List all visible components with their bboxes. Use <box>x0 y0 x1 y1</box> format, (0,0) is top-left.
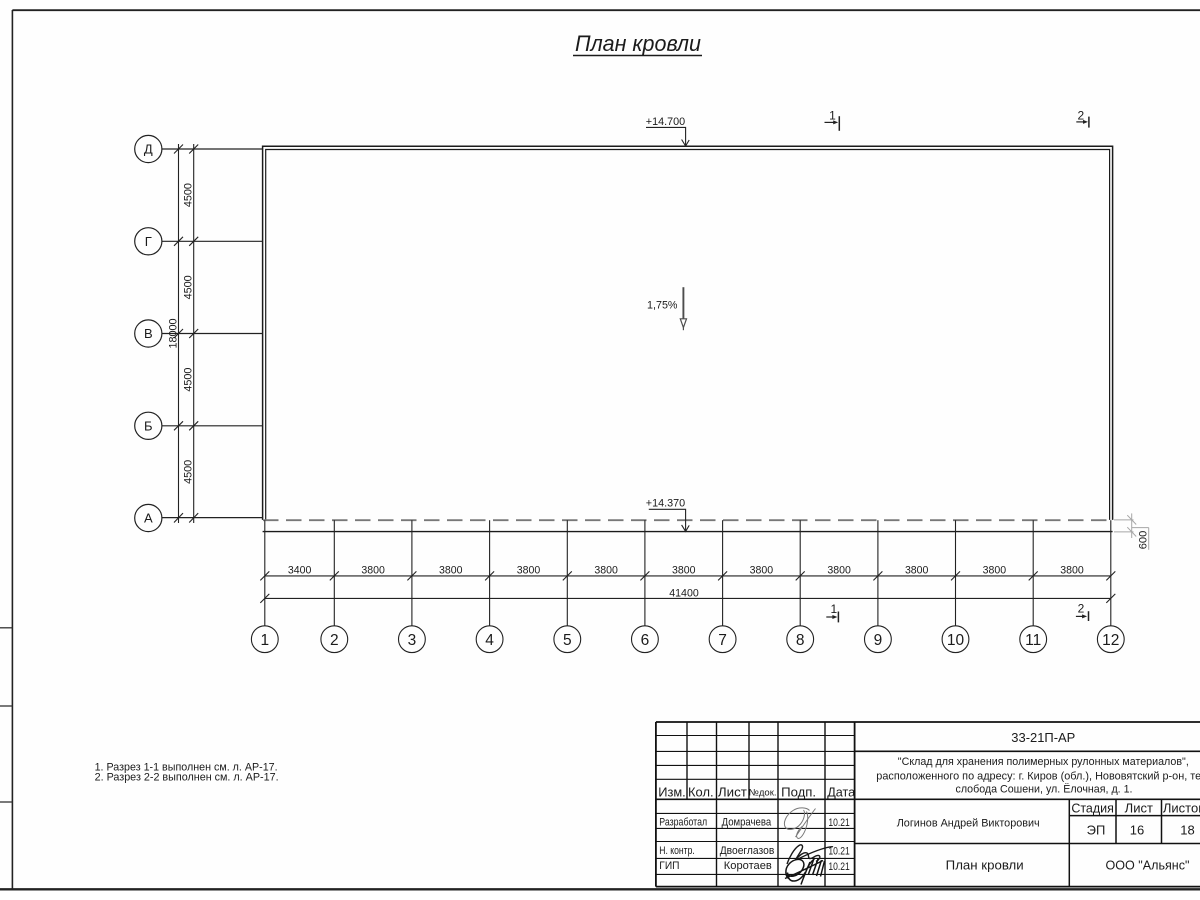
svg-text:План кровли: План кровли <box>575 31 701 56</box>
svg-text:Домрачева: Домрачева <box>722 816 772 828</box>
svg-text:10: 10 <box>947 632 965 649</box>
svg-text:Разработал: Разработал <box>659 816 707 828</box>
svg-text:Лист: Лист <box>1125 800 1153 815</box>
svg-text:10.21: 10.21 <box>828 861 849 873</box>
svg-text:3: 3 <box>408 632 417 649</box>
svg-text:10.21: 10.21 <box>828 817 849 829</box>
svg-text:7: 7 <box>718 632 727 649</box>
svg-text:+14.700: +14.700 <box>646 116 685 128</box>
svg-text:Кол.: Кол. <box>688 784 714 799</box>
svg-text:Двоеглазов: Двоеглазов <box>720 845 775 857</box>
svg-text:1: 1 <box>830 602 837 616</box>
svg-text:3400: 3400 <box>288 564 312 576</box>
svg-text:План кровли: План кровли <box>946 858 1024 873</box>
svg-text:Логинов Андрей Викторович: Логинов Андрей Викторович <box>897 818 1040 830</box>
svg-text:3800: 3800 <box>594 564 618 576</box>
svg-text:3800: 3800 <box>905 564 929 576</box>
svg-text:+14.370: +14.370 <box>646 498 685 510</box>
svg-text:Подп.: Подп. <box>781 784 816 799</box>
svg-text:слобода Сошени, ул. Ёлочная, д: слобода Сошени, ул. Ёлочная, д. 1. <box>956 783 1133 795</box>
svg-text:4: 4 <box>485 632 494 649</box>
svg-text:Дата: Дата <box>827 784 856 799</box>
svg-text:Н. контр.: Н. контр. <box>659 845 695 857</box>
svg-text:33-21П-АР: 33-21П-АР <box>1011 730 1075 745</box>
svg-text:В: В <box>144 326 153 341</box>
svg-text:41400: 41400 <box>669 588 699 600</box>
svg-text:Изм.: Изм. <box>658 784 686 799</box>
svg-text:8: 8 <box>796 632 805 649</box>
svg-text:Д: Д <box>144 142 153 157</box>
svg-text:600: 600 <box>1138 531 1150 550</box>
svg-text:4500: 4500 <box>182 460 194 484</box>
svg-text:16: 16 <box>1130 823 1144 838</box>
svg-text:ООО "Альянс": ООО "Альянс" <box>1106 858 1190 873</box>
svg-text:12: 12 <box>1102 632 1119 649</box>
svg-text:Коротаев: Коротаев <box>724 860 772 872</box>
svg-text:1: 1 <box>260 632 269 649</box>
svg-text:ГИП: ГИП <box>659 860 679 872</box>
svg-text:3800: 3800 <box>672 564 696 576</box>
svg-text:Лист: Лист <box>718 784 747 799</box>
svg-text:3800: 3800 <box>1060 564 1084 576</box>
svg-text:11: 11 <box>1025 632 1041 649</box>
svg-text:Листов: Листов <box>1163 800 1200 815</box>
svg-text:3800: 3800 <box>517 564 541 576</box>
svg-text:4500: 4500 <box>182 275 194 299</box>
svg-text:2. Разрез 2-2 выполнен см. л.: 2. Разрез 2-2 выполнен см. л. АР-17. <box>95 771 279 783</box>
svg-text:3800: 3800 <box>827 564 851 576</box>
svg-text:4500: 4500 <box>182 368 194 392</box>
svg-text:3800: 3800 <box>439 564 463 576</box>
svg-text:18: 18 <box>1180 822 1194 837</box>
svg-text:2: 2 <box>330 632 339 649</box>
svg-text:3800: 3800 <box>361 564 385 576</box>
svg-text:9: 9 <box>874 632 883 649</box>
svg-text:3800: 3800 <box>983 564 1007 576</box>
svg-text:1,75%: 1,75% <box>647 299 678 311</box>
svg-text:ЭП: ЭП <box>1087 823 1106 838</box>
svg-text:5: 5 <box>563 632 572 649</box>
svg-text:18000: 18000 <box>168 319 180 349</box>
svg-text:4500: 4500 <box>182 183 194 207</box>
svg-text:А: А <box>144 511 153 526</box>
svg-text:расположенного по адресу: г. К: расположенного по адресу: г. Киров (обл.… <box>876 770 1200 782</box>
svg-text:Стадия: Стадия <box>1071 800 1114 815</box>
svg-text:6: 6 <box>641 632 650 649</box>
svg-text:Б: Б <box>144 419 153 434</box>
svg-text:Г: Г <box>145 234 152 249</box>
svg-text:1: 1 <box>829 109 836 123</box>
svg-text:3800: 3800 <box>750 564 774 576</box>
svg-text:10.21: 10.21 <box>828 846 849 858</box>
svg-text:№док.: №док. <box>749 788 777 799</box>
svg-text:2: 2 <box>1078 601 1085 615</box>
svg-text:"Склад для хранения полимерных: "Склад для хранения полимерных рулонных … <box>898 756 1189 768</box>
